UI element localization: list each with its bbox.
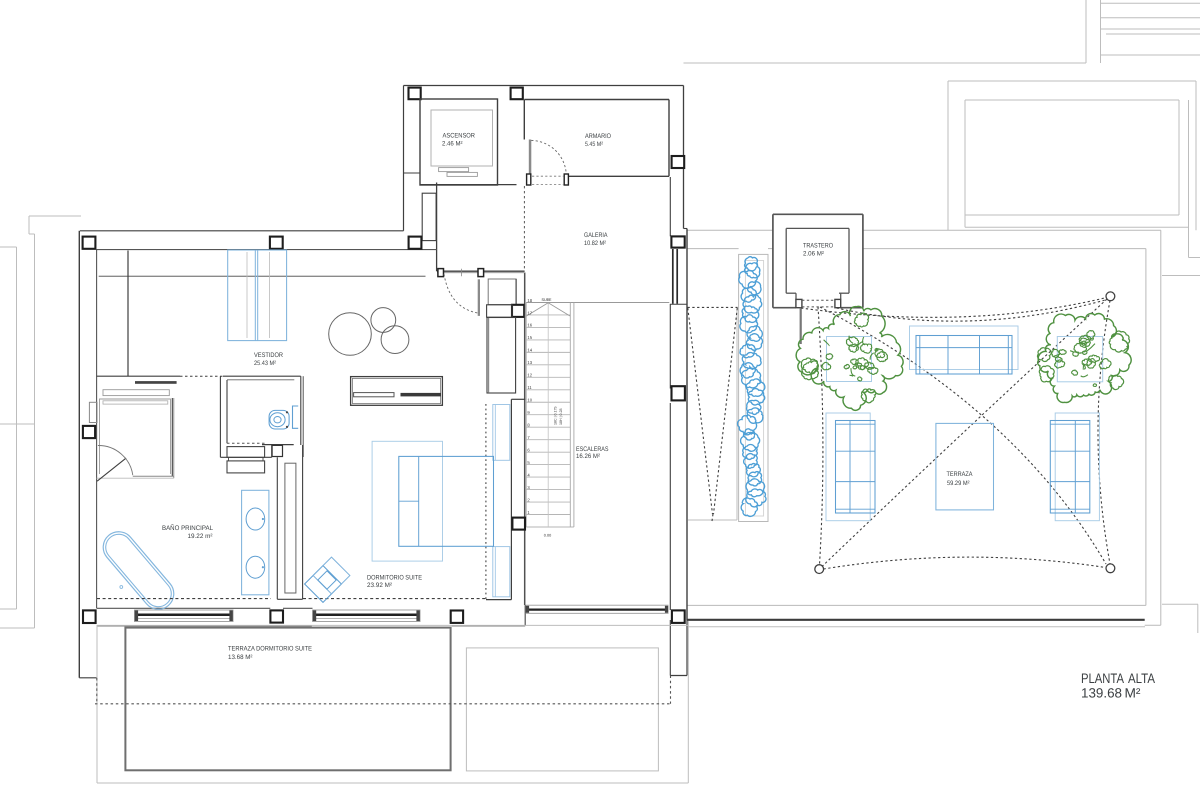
svg-text:139.68: 139.68 xyxy=(1081,686,1122,701)
svg-text:12: 12 xyxy=(527,373,532,378)
svg-text:ARMARIO: ARMARIO xyxy=(585,133,611,140)
svg-text:19.22 m²: 19.22 m² xyxy=(188,533,213,540)
svg-text:13.68 M²: 13.68 M² xyxy=(228,654,253,661)
svg-text:2.46 M²: 2.46 M² xyxy=(442,141,463,148)
svg-text:18C | 0.175: 18C | 0.175 xyxy=(553,406,557,425)
svg-text:18: 18 xyxy=(527,298,532,303)
svg-text:VESTIDOR: VESTIDOR xyxy=(254,352,283,359)
svg-text:23.92 M²: 23.92 M² xyxy=(367,582,392,589)
svg-text:18H | 0.28: 18H | 0.28 xyxy=(559,408,563,425)
svg-text:15: 15 xyxy=(527,335,532,340)
svg-text:ESCALERAS: ESCALERAS xyxy=(576,446,609,453)
svg-text:25.43 M²: 25.43 M² xyxy=(254,360,276,367)
svg-text:16: 16 xyxy=(527,323,532,328)
svg-text:59.29 M²: 59.29 M² xyxy=(947,480,970,487)
svg-text:0.00: 0.00 xyxy=(544,534,551,538)
svg-text:17: 17 xyxy=(527,310,532,315)
svg-text:ASCENSOR: ASCENSOR xyxy=(443,133,476,140)
svg-text:BAÑO PRINCIPAL: BAÑO PRINCIPAL xyxy=(162,524,213,532)
svg-text:13: 13 xyxy=(527,360,532,365)
svg-text:11: 11 xyxy=(527,385,532,390)
svg-text:ALTA: ALTA xyxy=(1128,671,1156,686)
svg-text:TERRAZA: TERRAZA xyxy=(947,471,974,478)
svg-text:M²: M² xyxy=(1125,686,1142,701)
svg-text:PLANTA: PLANTA xyxy=(1081,671,1125,686)
svg-text:DORMITORIO SUITE: DORMITORIO SUITE xyxy=(367,575,423,582)
svg-text:10.82 M²: 10.82 M² xyxy=(584,240,606,247)
svg-text:GALERIA: GALERIA xyxy=(584,232,608,239)
svg-text:TRASTERO: TRASTERO xyxy=(803,243,833,250)
svg-text:5.45 M²: 5.45 M² xyxy=(585,141,603,148)
svg-text:10: 10 xyxy=(527,398,532,403)
svg-text:SUBE: SUBE xyxy=(542,298,552,302)
svg-text:14: 14 xyxy=(527,348,532,353)
svg-text:16.26 M²: 16.26 M² xyxy=(576,453,600,460)
svg-text:TERRAZA DORMITORIO SUITE: TERRAZA DORMITORIO SUITE xyxy=(228,646,313,653)
svg-text:2.06 M²: 2.06 M² xyxy=(803,250,824,257)
